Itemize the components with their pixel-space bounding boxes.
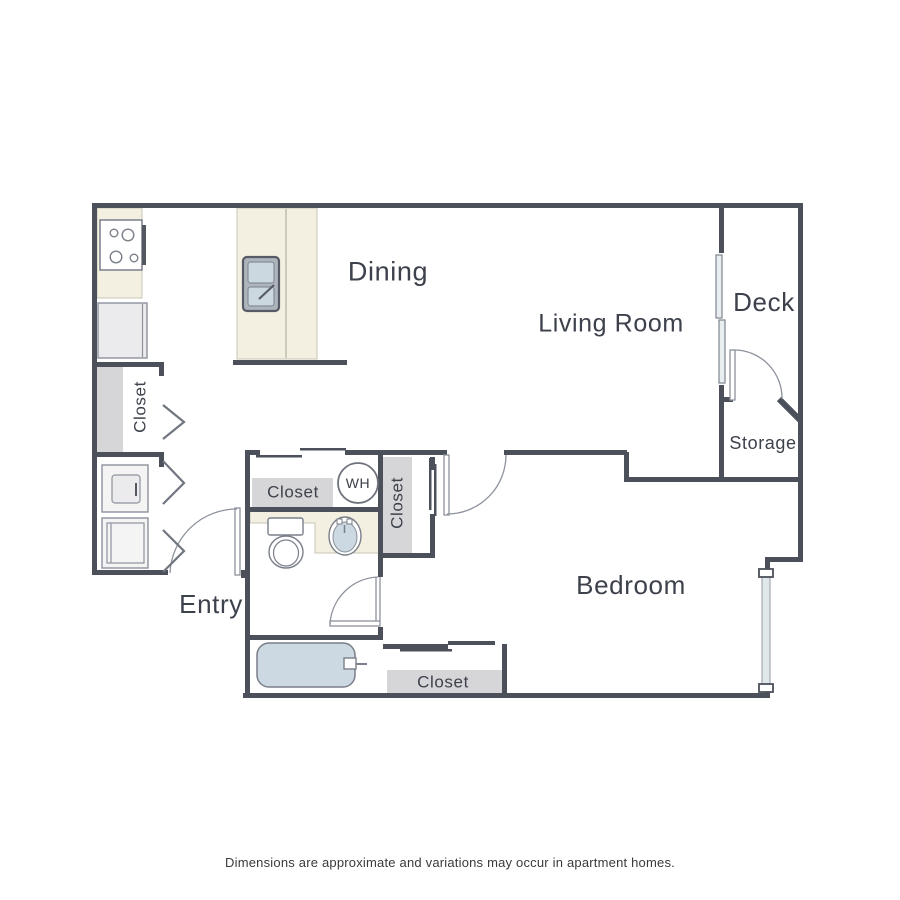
room-label-dining: Dining (348, 259, 428, 286)
bathroom-sink-icon (329, 517, 361, 555)
bedroom-window (759, 569, 773, 692)
dryer-icon (102, 465, 148, 512)
bedroom-closet-bypass-door (400, 649, 452, 652)
room-label-deck: Deck (733, 289, 795, 315)
laundry-bifold-door (163, 461, 184, 504)
stove-icon (100, 220, 146, 270)
closet-label-bath: Closet (267, 484, 319, 501)
entry-door-leaf (235, 508, 240, 575)
storage-door-swing (735, 350, 782, 399)
water-heater-label: WH (346, 476, 371, 490)
room-label-entry: Entry (179, 591, 243, 617)
floor-plan-canvas: Dining Living Room Deck Storage Bedroom … (0, 0, 900, 900)
closet-label-bedroom: Closet (417, 674, 469, 691)
walls (92, 203, 803, 698)
hall-closet-bypass-door (429, 458, 432, 510)
disclaimer-text: Dimensions are approximate and variation… (0, 855, 900, 870)
bathtub-icon (257, 643, 367, 687)
bathroom-door-swing (330, 577, 378, 624)
toilet-icon (268, 518, 303, 568)
kitchen-closet-floor (95, 367, 123, 452)
bedroom-door-swing (447, 455, 506, 514)
hall-closet-bypass-door (434, 464, 437, 516)
room-label-bedroom: Bedroom (576, 572, 686, 598)
laundry-bifold-door (163, 530, 184, 572)
bath-closet-bypass-door (256, 455, 302, 458)
room-label-living-room: Living Room (538, 312, 684, 337)
bath-closet-bypass-door (300, 448, 346, 451)
storage-door-leaf (730, 350, 735, 400)
sliding-glass-door (716, 255, 725, 383)
closet-label-hall: Closet (389, 477, 406, 529)
kitchen-closet-bifold-door (163, 405, 184, 439)
closet-label-kitchen: Closet (132, 381, 149, 433)
bifold-doors (163, 405, 184, 572)
entry-door-swing (170, 509, 237, 573)
washer-icon (102, 518, 148, 568)
refrigerator-icon (98, 303, 147, 358)
bedroom-door-leaf (444, 455, 449, 515)
bathroom-door-leaf (330, 621, 380, 626)
storage-chamfer-wall (779, 399, 801, 421)
room-label-storage: Storage (729, 434, 796, 452)
kitchen-sink-icon (243, 257, 279, 311)
